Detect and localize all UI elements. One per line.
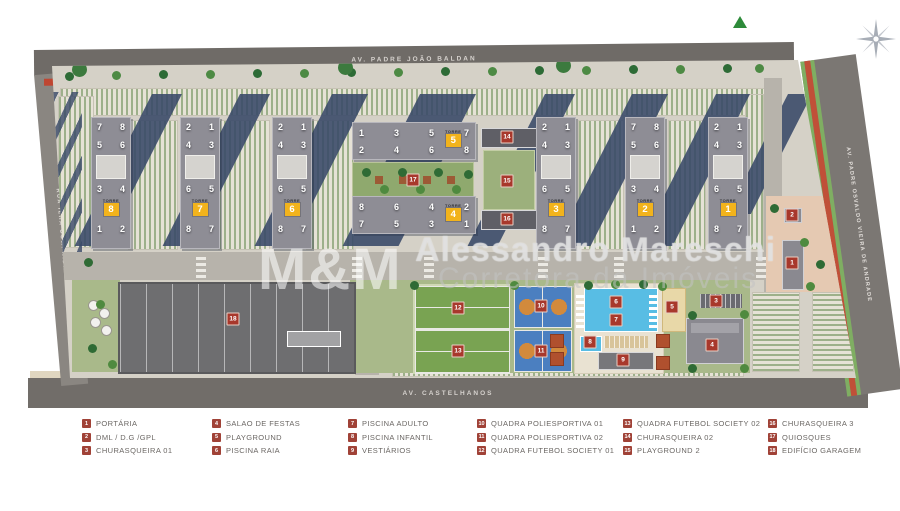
planter (375, 176, 383, 184)
legend-column-1: 1PORTÁRIA2DML / D.G /GPL3CHURASQUEIRA 01 (82, 417, 172, 458)
unit-number: 1 (209, 122, 214, 132)
unit-number: 4 (542, 140, 547, 150)
unit-row: 65 (181, 180, 219, 198)
legend-number-badge: 16 (768, 419, 777, 428)
tower-badge-2: 2 (638, 203, 653, 216)
legend-number-badge: 6 (212, 446, 221, 455)
bbq-hut (550, 334, 564, 348)
unit-number: 5 (394, 219, 399, 229)
unit-number: 6 (542, 184, 547, 194)
legend-item-10: 10QUADRA POLIESPORTIVA 01 (477, 417, 614, 431)
unit-number: 6 (120, 140, 125, 150)
legend-item-12: 12QUADRA FUTEBOL SOCIETY 01 (477, 444, 614, 458)
unit-number: 3 (97, 184, 102, 194)
tower-core (541, 155, 571, 179)
trees-top-large (0, 0, 15, 15)
unit-number: 1 (359, 128, 364, 138)
unit-row: 21 (537, 118, 575, 136)
tower-1: 214365TORRE187 (708, 117, 748, 249)
unit-number: 4 (278, 140, 283, 150)
legend: 1PORTÁRIA2DML / D.G /GPL3CHURASQUEIRA 01… (0, 413, 900, 473)
unit-number: 3 (394, 128, 399, 138)
crosswalk (614, 254, 624, 278)
legend-column-6: 16CHURASQUEIRA 317QUIOSQUES18EDIFÍCIO GA… (768, 417, 861, 458)
unit-number: 3 (737, 140, 742, 150)
legend-label: PISCINA ADULTO (362, 419, 429, 428)
tower-badge-row: TORRE2 (626, 198, 664, 220)
tower-7: 214365TORRE787 (180, 117, 220, 249)
legend-column-3: 7PISCINA ADULTO8PISCINA INFANTIL9VESTIÁR… (348, 417, 433, 458)
unit-number: 1 (464, 219, 469, 229)
unit-number: 7 (301, 224, 306, 234)
legend-label: DML / D.G /GPL (96, 433, 156, 442)
legend-number-badge: 2 (82, 433, 91, 442)
legend-number-badge: 9 (348, 446, 357, 455)
unit-number: 3 (301, 140, 306, 150)
pool-pergola (604, 336, 648, 348)
facility-marker-14: 14 (501, 131, 514, 144)
water-tank (101, 325, 112, 336)
unit-number: 4 (186, 140, 191, 150)
water-tank (90, 317, 101, 328)
tower-core (185, 155, 215, 179)
legend-item-18: 18EDIFÍCIO GARAGEM (768, 444, 861, 458)
unit-number: 1 (301, 122, 306, 132)
unit-row: 21 (709, 118, 747, 136)
legend-label: PLAYGROUND 2 (637, 446, 700, 455)
facility-marker-3: 3 (710, 295, 723, 308)
legend-item-3: 3CHURASQUEIRA 01 (82, 444, 172, 458)
unit-row: 12 (92, 220, 130, 238)
unit-number: 5 (565, 184, 570, 194)
unit-number: 1 (631, 224, 636, 234)
planter (423, 176, 431, 184)
tower-core (713, 155, 743, 179)
legend-item-16: 16CHURASQUEIRA 3 (768, 417, 861, 431)
unit-number: 7 (97, 122, 102, 132)
facility-marker-12: 12 (452, 302, 465, 315)
pool-loungers (576, 292, 584, 328)
legend-number-badge: 11 (477, 433, 486, 442)
legend-label: CHURASQUEIRA 02 (637, 433, 713, 442)
water-tank (99, 308, 110, 319)
legend-label: QUADRA FUTEBOL SOCIETY 02 (637, 419, 760, 428)
unit-number: 5 (631, 140, 636, 150)
facility-marker-9: 9 (617, 354, 630, 367)
unit-number: 5 (97, 140, 102, 150)
unit-number: 3 (429, 219, 434, 229)
unit-number: 4 (654, 184, 659, 194)
unit-number: 5 (737, 184, 742, 194)
tower-4: 86427531TORRE4 (352, 196, 476, 234)
tower-5: 13572468TORRE5 (352, 122, 476, 160)
legend-column-2: 4SALAO DE FESTAS5PLAYGROUND6PISCINA RAIA (212, 417, 300, 458)
unit-number: 1 (97, 224, 102, 234)
tower-badge-wrap: TORRE5 (445, 129, 461, 147)
pool-loungers (649, 292, 657, 328)
unit-number: 2 (542, 122, 547, 132)
trees-top (0, 0, 9, 9)
legend-label: PLAYGROUND (226, 433, 282, 442)
legend-number-badge: 14 (623, 433, 632, 442)
facility-marker-17: 17 (407, 174, 420, 187)
bbq-hut (550, 352, 564, 366)
facility-marker-2: 2 (786, 209, 799, 222)
unit-number: 4 (120, 184, 125, 194)
compass-rose-icon (855, 18, 897, 60)
unit-row: 65 (709, 180, 747, 198)
facility-marker-6: 6 (610, 296, 623, 309)
crosswalk (756, 254, 766, 278)
tower-core (630, 155, 660, 179)
legend-number-badge: 7 (348, 419, 357, 428)
legend-item-9: 9VESTIÁRIOS (348, 444, 433, 458)
tower-badge-row: TORRE7 (181, 198, 219, 220)
street-bottom: AV. CASTELHANOS (28, 378, 868, 408)
unit-number: 3 (631, 184, 636, 194)
legend-number-badge: 17 (768, 433, 777, 442)
tower-6: 214365TORRE687 (272, 117, 312, 249)
tower-badge-row: TORRE6 (273, 198, 311, 220)
legend-label: EDIFÍCIO GARAGEM (782, 446, 861, 455)
crosswalk (538, 254, 548, 278)
crosswalk (424, 254, 434, 278)
legend-number-badge: 18 (768, 446, 777, 455)
unit-number: 5 (301, 184, 306, 194)
unit-row: 87 (273, 220, 311, 238)
tower-badge-8: 8 (104, 203, 119, 216)
unit-row: 43 (181, 136, 219, 154)
tower-badge-4: 4 (446, 208, 461, 221)
tower-badge-row: TORRE3 (537, 198, 575, 220)
legend-number-badge: 12 (477, 446, 486, 455)
unit-number: 8 (464, 145, 469, 155)
facility-marker-16: 16 (501, 213, 514, 226)
legend-label: VESTIÁRIOS (362, 446, 411, 455)
legend-item-13: 13QUADRA FUTEBOL SOCIETY 02 (623, 417, 760, 431)
unit-row: 34 (92, 180, 130, 198)
unit-number: 8 (278, 224, 283, 234)
tower-badge-3: 3 (549, 203, 564, 216)
legend-label: QUADRA POLIESPORTIVA 01 (491, 419, 603, 428)
tower-badge-1: 1 (721, 203, 736, 216)
legend-label: QUADRA POLIESPORTIVA 02 (491, 433, 603, 442)
tower-badge-wrap: TORRE4 (445, 203, 461, 221)
unit-number: 8 (542, 224, 547, 234)
legend-label: PORTÁRIA (96, 419, 137, 428)
legend-item-6: 6PISCINA RAIA (212, 444, 300, 458)
unit-number: 6 (429, 145, 434, 155)
unit-row: 65 (273, 180, 311, 198)
facility-marker-15: 15 (501, 175, 514, 188)
legend-item-2: 2DML / D.G /GPL (82, 431, 172, 445)
unit-row: 43 (709, 136, 747, 154)
unit-row: 78 (92, 118, 130, 136)
garage-entrance (287, 331, 341, 347)
central-road (62, 252, 856, 280)
circle (873, 36, 879, 42)
planter (447, 176, 455, 184)
unit-number: 4 (429, 202, 434, 212)
site-plan-scene: AV. PADRE JOÃO BALDAN AV. CASTELHANOS RU… (0, 0, 900, 511)
unit-number: 2 (120, 224, 125, 234)
unit-number: 1 (737, 122, 742, 132)
unit-number: 6 (654, 140, 659, 150)
tower-badge-row: TORRE1 (709, 198, 747, 220)
legend-item-5: 5PLAYGROUND (212, 431, 300, 445)
facility-marker-1: 1 (786, 257, 799, 270)
unit-number: 4 (714, 140, 719, 150)
unit-number: 8 (186, 224, 191, 234)
unit-number: 7 (631, 122, 636, 132)
legend-label: CHURASQUEIRA 3 (782, 419, 854, 428)
tower-badge-6: 6 (285, 203, 300, 216)
legend-column-4: 10QUADRA POLIESPORTIVA 0111QUADRA POLIES… (477, 417, 614, 458)
legend-item-7: 7PISCINA ADULTO (348, 417, 433, 431)
tower-8: 785634TORRE812 (91, 117, 131, 249)
legend-item-11: 11QUADRA POLIESPORTIVA 02 (477, 431, 614, 445)
unit-number: 8 (120, 122, 125, 132)
unit-number: 8 (714, 224, 719, 234)
unit-row: 56 (92, 136, 130, 154)
facility-marker-5: 5 (666, 301, 679, 314)
legend-label: QUADRA FUTEBOL SOCIETY 01 (491, 446, 614, 455)
unit-number: 6 (278, 184, 283, 194)
legend-number-badge: 13 (623, 419, 632, 428)
tower-2: 785634TORRE212 (625, 117, 665, 249)
trees-right-road (0, 0, 9, 9)
unit-number: 1 (565, 122, 570, 132)
legend-item-17: 17QUIOSQUES (768, 431, 861, 445)
unit-number: 2 (714, 122, 719, 132)
legend-item-4: 4SALAO DE FESTAS (212, 417, 300, 431)
legend-label: PISCINA RAIA (226, 446, 280, 455)
unit-row: 34 (626, 180, 664, 198)
unit-row: 87 (709, 220, 747, 238)
unit-number: 2 (278, 122, 283, 132)
facility-marker-18: 18 (227, 313, 240, 326)
parking-column (752, 292, 800, 372)
unit-row: 65 (537, 180, 575, 198)
unit-number: 8 (359, 202, 364, 212)
legend-item-1: 1PORTÁRIA (82, 417, 172, 431)
crosswalk (196, 254, 206, 278)
tower-badge-row: TORRE8 (92, 198, 130, 220)
unit-number: 3 (209, 140, 214, 150)
unit-row: 21 (273, 118, 311, 136)
unit-number: 2 (464, 202, 469, 212)
tower-core (96, 155, 126, 179)
unit-row: 43 (273, 136, 311, 154)
legend-column-5: 13QUADRA FUTEBOL SOCIETY 0214CHURASQUEIR… (623, 417, 760, 458)
legend-item-8: 8PISCINA INFANTIL (348, 431, 433, 445)
unit-number: 5 (429, 128, 434, 138)
tree-symbol-icon (733, 16, 747, 28)
unit-number: 7 (359, 219, 364, 229)
legend-item-15: 15PLAYGROUND 2 (623, 444, 760, 458)
unit-number: 5 (209, 184, 214, 194)
unit-row: 21 (181, 118, 219, 136)
legend-label: SALAO DE FESTAS (226, 419, 300, 428)
legend-number-badge: 8 (348, 433, 357, 442)
unit-number: 2 (654, 224, 659, 234)
unit-number: 8 (654, 122, 659, 132)
facility-marker-4: 4 (706, 339, 719, 352)
bbq-hut (656, 334, 670, 348)
unit-number: 7 (209, 224, 214, 234)
unit-row: 12 (626, 220, 664, 238)
unit-number: 7 (464, 128, 469, 138)
unit-number: 7 (565, 224, 570, 234)
tower-3: 214365TORRE387 (536, 117, 576, 249)
legend-number-badge: 3 (82, 446, 91, 455)
facility-marker-7: 7 (610, 314, 623, 327)
legend-number-badge: 1 (82, 419, 91, 428)
facility-marker-8: 8 (584, 336, 597, 349)
street-bottom-label: AV. CASTELHANOS (402, 390, 493, 397)
street-right-label: AV. PADRE OSVALDO VIEIRA DE ANDRADE (845, 146, 873, 302)
unit-number: 6 (394, 202, 399, 212)
unit-row: 87 (537, 220, 575, 238)
facility-marker-13: 13 (452, 345, 465, 358)
trees-scatter (0, 0, 9, 9)
legend-label: QUIOSQUES (782, 433, 831, 442)
unit-number: 2 (359, 145, 364, 155)
facility-marker-11: 11 (535, 345, 548, 358)
water-tank (88, 300, 99, 311)
unit-row: 43 (537, 136, 575, 154)
street-top-label: AV. PADRE JOÃO BALDAN (351, 55, 476, 63)
tower-badge-5: 5 (446, 134, 461, 147)
unit-number: 3 (565, 140, 570, 150)
crosswalk (352, 254, 362, 278)
unit-row: 78 (626, 118, 664, 136)
legend-number-badge: 5 (212, 433, 221, 442)
unit-number: 7 (737, 224, 742, 234)
legend-label: CHURASQUEIRA 01 (96, 446, 172, 455)
bbq-hut (656, 356, 670, 370)
unit-number: 6 (186, 184, 191, 194)
legend-number-badge: 10 (477, 419, 486, 428)
soccer-fields (413, 284, 510, 374)
legend-item-14: 14CHURASQUEIRA 02 (623, 431, 760, 445)
facility-marker-10: 10 (535, 300, 548, 313)
legend-number-badge: 15 (623, 446, 632, 455)
tower-badge-7: 7 (193, 203, 208, 216)
unit-row: 56 (626, 136, 664, 154)
unit-number: 6 (714, 184, 719, 194)
unit-row: 87 (181, 220, 219, 238)
tower-core (277, 155, 307, 179)
unit-number: 2 (186, 122, 191, 132)
legend-number-badge: 4 (212, 419, 221, 428)
unit-number: 4 (394, 145, 399, 155)
legend-label: PISCINA INFANTIL (362, 433, 433, 442)
garage-building (118, 282, 356, 374)
